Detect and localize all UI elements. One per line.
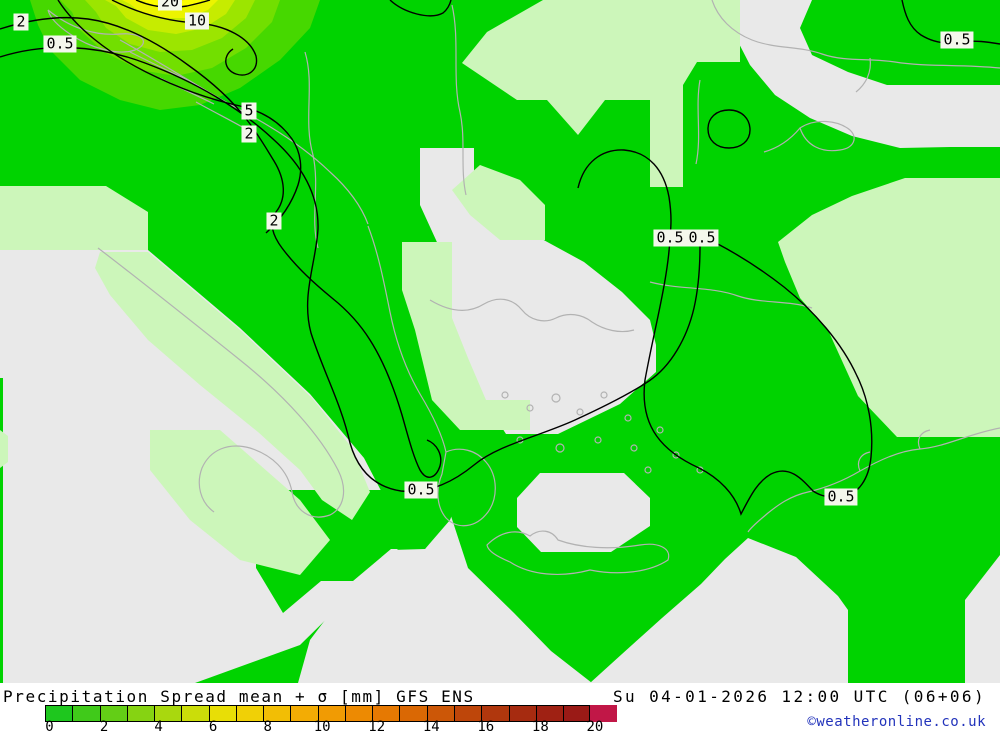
legend-tick-12: 12 — [368, 719, 385, 733]
map-title: Precipitation Spread mean + σ [mm] GFS E… — [3, 687, 475, 706]
legend-tick-16: 16 — [477, 719, 494, 733]
contour-label-2: 2 — [241, 126, 256, 143]
pale-left-sliver — [0, 430, 8, 468]
contour-label-5: 5 — [241, 103, 256, 120]
caption-bar: Precipitation Spread mean + σ [mm] GFS E… — [0, 683, 1000, 733]
legend-tick-6: 6 — [209, 719, 217, 733]
precipitation-map: 20.520105220.50.50.50.50.5 — [0, 0, 1000, 683]
copyright-link[interactable]: ©weatheronline.co.uk — [807, 714, 986, 730]
contour-label-2: 2 — [13, 14, 28, 31]
contour-label-20: 20 — [158, 0, 182, 11]
contour-label-0_5: 0.5 — [653, 230, 686, 247]
contour-label-0_5: 0.5 — [824, 489, 857, 506]
contour-label-10: 10 — [185, 13, 209, 30]
legend-tick-0: 0 — [45, 719, 53, 733]
weather-map-page: 20.520105220.50.50.50.50.5 Precipitation… — [0, 0, 1000, 733]
map-canvas — [0, 0, 1000, 683]
contour-label-0_5: 0.5 — [940, 32, 973, 49]
legend-tick-20: 20 — [586, 719, 603, 733]
legend-tick-4: 4 — [154, 719, 162, 733]
legend-tick-8: 8 — [263, 719, 271, 733]
legend-cell-1 — [72, 705, 99, 722]
legend-tick-14: 14 — [423, 719, 440, 733]
map-datetime: Su 04-01-2026 12:00 UTC (06+06) — [613, 687, 986, 706]
contour-label-0_5: 0.5 — [685, 230, 718, 247]
contour-label-0_5: 0.5 — [43, 36, 76, 53]
contour-label-2: 2 — [266, 213, 281, 230]
legend-tick-2: 2 — [100, 719, 108, 733]
legend-tick-18: 18 — [532, 719, 549, 733]
legend-ticks: 02468101214161820 — [45, 722, 645, 733]
legend-cell-7 — [236, 705, 263, 722]
legend-cell-5 — [181, 705, 208, 722]
legend-tick-10: 10 — [314, 719, 331, 733]
contour-label-0_5: 0.5 — [404, 482, 437, 499]
legend-cell-3 — [127, 705, 154, 722]
